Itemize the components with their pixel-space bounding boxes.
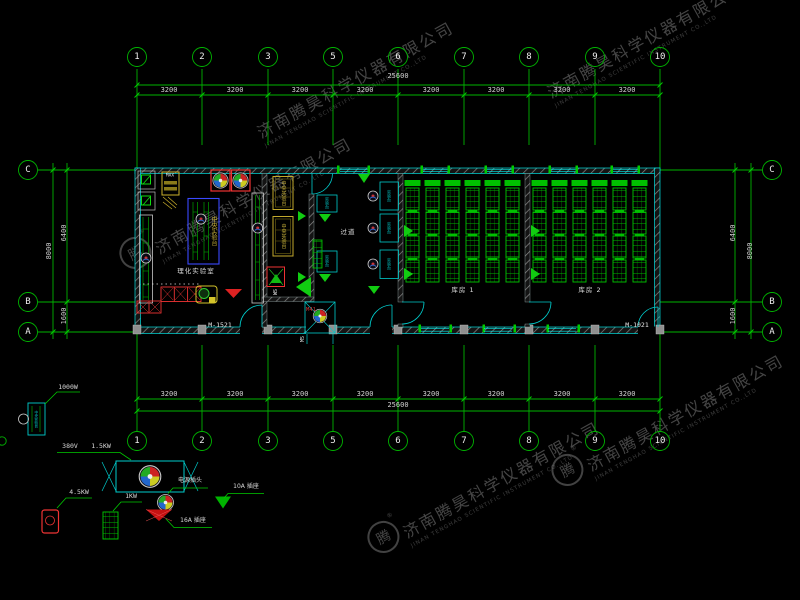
vent-triangle-icon <box>225 289 242 298</box>
storage-room-2-racks <box>531 180 648 282</box>
wall-bench-right <box>252 193 264 303</box>
legend-heater <box>42 498 92 533</box>
legend-bench-symbol <box>19 392 81 435</box>
legend-rack <box>103 502 142 539</box>
middle-room-equipment <box>267 177 311 298</box>
cabinet <box>162 172 179 209</box>
floor-plan-drawing <box>0 0 800 600</box>
legend-fan-box <box>57 453 198 493</box>
legend-socket-10a <box>215 494 264 509</box>
lab-room-equipment <box>137 170 264 313</box>
mobile-unit <box>196 286 217 303</box>
cad-drawing-canvas: 腾® 济南腾昊科学仪器有限公司 JINAN TENGHAO SCIENTIFIC… <box>0 0 800 600</box>
legend-socket-16a <box>146 510 212 528</box>
legend-symbols <box>19 392 265 539</box>
entry-fan-icon <box>313 309 327 323</box>
storage-room-1-racks <box>404 180 521 282</box>
corridor-equipment <box>313 174 399 294</box>
floor-drain <box>267 267 285 287</box>
lower-cabinets <box>137 287 201 313</box>
vent-triangle-icon <box>296 211 311 297</box>
legend-power-plug <box>168 488 208 494</box>
central-bench <box>188 199 219 265</box>
corridor-rack <box>313 240 322 268</box>
grid-axes <box>0 48 782 451</box>
